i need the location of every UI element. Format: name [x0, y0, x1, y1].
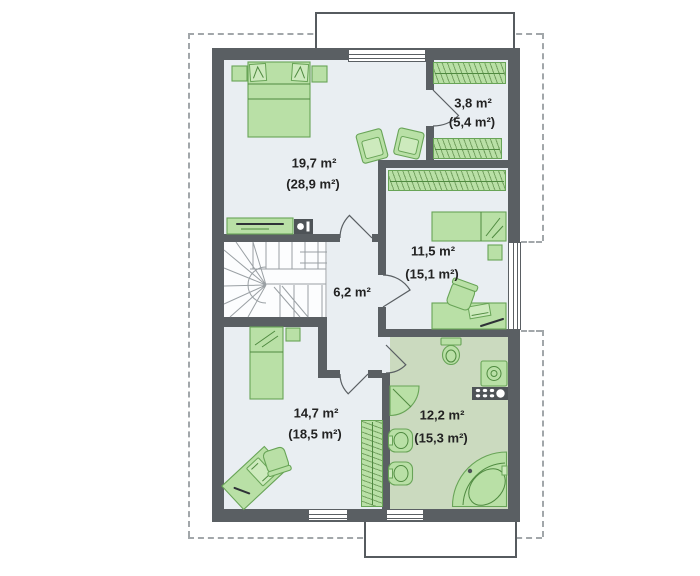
wall-room-bottom-door-right — [368, 370, 382, 378]
window-bottom-right — [386, 509, 424, 521]
bathroom-floor — [390, 337, 508, 509]
roof-outline-left — [188, 33, 190, 537]
room-label-hallway-area: 6,2 m² — [333, 285, 371, 300]
wardrobe-cabinet-closet-bottom — [433, 138, 502, 159]
room-label-bedroom-right-roof: (15,1 m²) — [405, 267, 458, 282]
room-label-bedroom-bottom-area: 14,7 m² — [294, 406, 339, 421]
room-label-bedroom-bottom-roof: (18,5 m²) — [288, 427, 341, 442]
roof-outline-notch-top — [521, 241, 542, 243]
wall-hall-right-upper — [378, 160, 386, 275]
room-label-bedroom-main-roof: (28,9 m²) — [286, 177, 339, 192]
dormer-bottom — [364, 520, 517, 558]
wall-bathroom-top — [378, 329, 508, 337]
roof-outline-notch-bottom — [521, 330, 542, 332]
room-label-wardrobe-roof: (5,4 m²) — [449, 115, 495, 130]
staircase-area — [224, 242, 327, 317]
room-label-bedroom-right-area: 11,5 m² — [411, 244, 455, 259]
window-right — [508, 242, 521, 330]
roof-outline-right-lower — [542, 330, 544, 537]
wall-hall-left — [318, 317, 327, 378]
wall-bedroom-bottom — [224, 234, 340, 242]
wall-closet-bottom — [378, 160, 508, 168]
window-bottom-left — [308, 509, 348, 521]
room-label-bedroom-main-area: 19,7 m² — [292, 156, 337, 171]
wall-room-bottom-door-left — [318, 370, 340, 378]
wardrobe-cabinet-bedroom-bottom — [361, 420, 383, 507]
room-label-wardrobe-area: 3,8 m² — [454, 96, 492, 111]
wall-bathroom-left — [382, 373, 390, 509]
room-label-bathroom-area: 12,2 m² — [420, 408, 465, 423]
dormer-top — [315, 12, 515, 52]
floor-plan: 19,7 m² (28,9 m²) 3,8 m² (5,4 m²) 11,5 m… — [0, 0, 700, 576]
roof-outline-right-upper — [542, 33, 544, 241]
wardrobe-cabinet-closet-top — [433, 62, 506, 84]
wardrobe-cabinet-bedroom-right — [388, 170, 506, 191]
wall-stairs-bottom — [212, 317, 327, 327]
room-label-bathroom-roof: (15,3 m²) — [414, 431, 467, 446]
window-top — [348, 49, 426, 62]
